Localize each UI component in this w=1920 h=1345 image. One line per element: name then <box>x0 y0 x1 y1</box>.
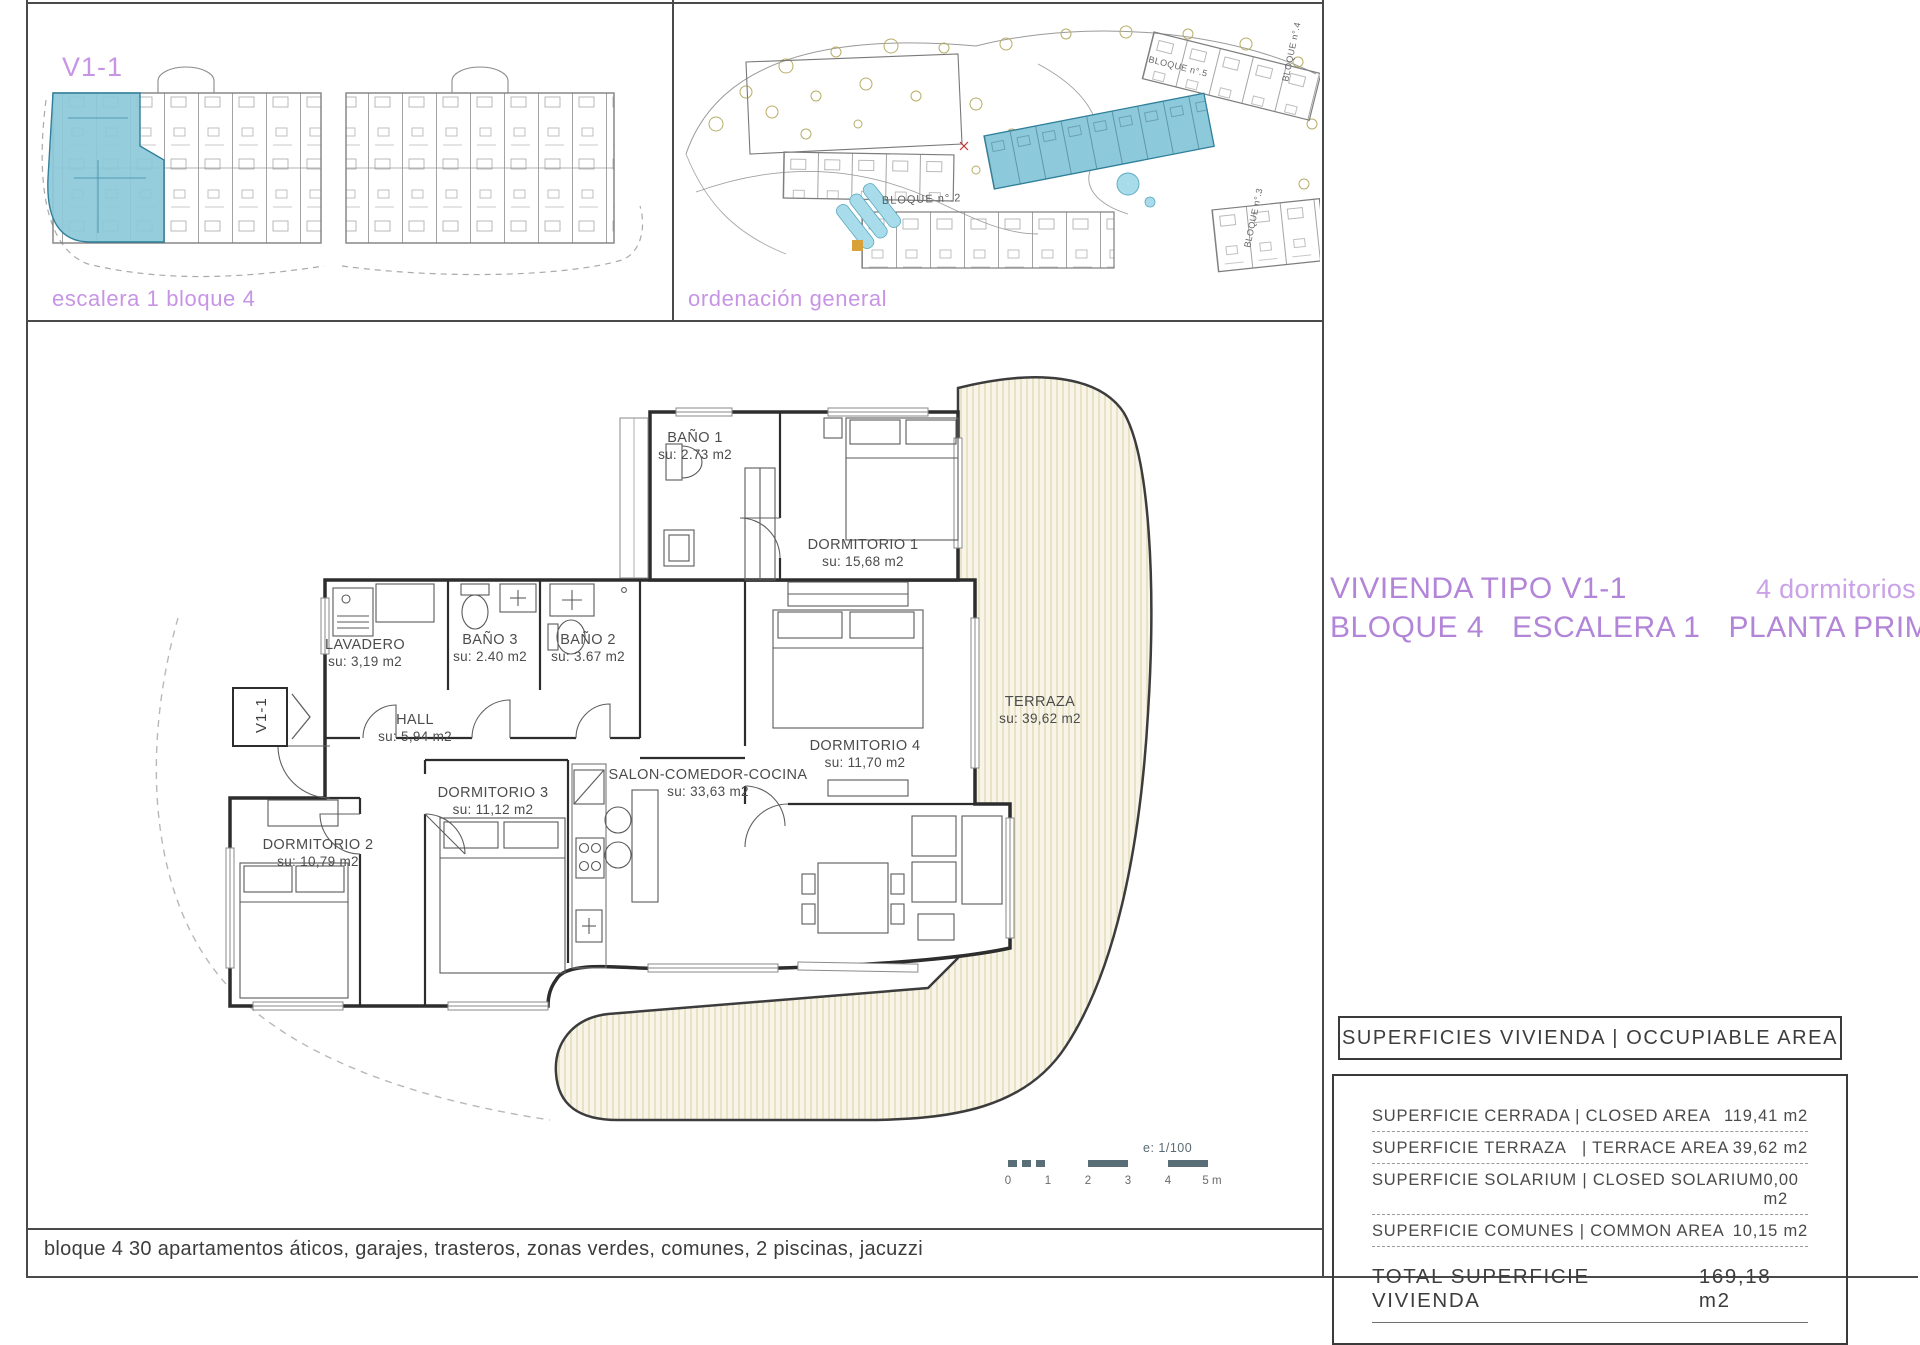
frame-right-column-border <box>1322 0 1324 1278</box>
scale-bar: e: 1/100 0 1 2 3 4 5 m <box>998 1136 1238 1192</box>
area-row-label: SUPERFICIE TERRAZA | TERRACE AREA <box>1372 1139 1729 1158</box>
room-label: DORMITORIO 1 <box>808 537 919 553</box>
table-row: SUPERFICIE COMUNES | COMMON AREA 10,15 m… <box>1372 1215 1808 1247</box>
dwelling-type-title: VIVIENDA TIPO V1-1 <box>1330 572 1627 606</box>
total-value: 169,18 m2 <box>1699 1265 1808 1313</box>
room-area: su: 10,79 m2 <box>277 854 359 869</box>
svg-text:0: 0 <box>1005 1175 1011 1187</box>
svg-text:5 m: 5 m <box>1202 1175 1221 1187</box>
entrance-tag-label: V1-1 <box>253 697 270 733</box>
area-row-value: 39,62 m2 <box>1733 1139 1808 1158</box>
svg-text:2: 2 <box>1085 1175 1091 1187</box>
areas-total-row: TOTAL SUPERFICIE VIVIENDA 169,18 m2 <box>1372 1259 1808 1323</box>
area-row-label: SUPERFICIE SOLARIUM | CLOSED SOLARIUM <box>1372 1171 1763 1190</box>
area-row-value: 0,00 m2 <box>1763 1171 1808 1209</box>
room-area: su: 2.40 m2 <box>453 649 527 664</box>
room-label: DORMITORIO 4 <box>810 738 921 754</box>
area-row-value: 10,15 m2 <box>1733 1222 1808 1241</box>
frame-above-footer <box>26 1228 1324 1230</box>
area-row-label: SUPERFICIE COMUNES | COMMON AREA <box>1372 1222 1725 1241</box>
pool-round <box>1117 173 1139 195</box>
stair-bump-2 <box>452 67 508 93</box>
site-plan-drawing: BLOQUE n°.5 BLOQUE n°.4 BLOQUE n°.2 BLOQ… <box>676 4 1320 296</box>
site-marker-orange <box>852 240 863 251</box>
room-area: su: 3,19 m2 <box>328 654 402 669</box>
scale-ticks: 0 1 2 3 4 5 m <box>1005 1175 1222 1187</box>
room-label: SALON-COMEDOR-COCINA <box>609 767 808 783</box>
total-label: TOTAL SUPERFICIE VIVIENDA <box>1372 1265 1699 1313</box>
footer-description: bloque 4 30 apartamentos áticos, garajes… <box>44 1238 923 1261</box>
svg-text:1: 1 <box>1045 1175 1051 1187</box>
room-area: su: 15,68 m2 <box>822 554 904 569</box>
room-label: HALL <box>396 712 434 728</box>
site-marker-red <box>960 142 968 150</box>
area-row-label: SUPERFICIE CERRADA | CLOSED AREA <box>1372 1107 1711 1126</box>
room-label: DORMITORIO 2 <box>263 837 374 853</box>
title-block: VIVIENDA TIPO V1-1 4 dormitorios BLOQUE … <box>1330 572 1916 645</box>
room-area: su: 33,63 m2 <box>667 784 749 799</box>
table-row: SUPERFICIE CERRADA | CLOSED AREA 119,41 … <box>1372 1100 1808 1132</box>
room-label: TERRAZA <box>1005 694 1075 710</box>
room-area: su: 2.73 m2 <box>658 447 732 462</box>
table-row: SUPERFICIE SOLARIUM | CLOSED SOLARIUM 0,… <box>1372 1164 1808 1215</box>
areas-table: SUPERFICIES VIVIENDA | OCCUPIABLE AREA S… <box>1332 1016 1848 1345</box>
areas-table-header: SUPERFICIES VIVIENDA | OCCUPIABLE AREA <box>1338 1016 1842 1060</box>
room-area: su: 11,70 m2 <box>825 755 906 770</box>
room-label: DORMITORIO 3 <box>438 785 549 801</box>
entrance-arrow-icon <box>292 694 310 739</box>
block-plan-caption: escalera 1 bloque 4 <box>52 286 255 312</box>
frame-divider-top-panels <box>672 0 674 320</box>
room-label: BAÑO 1 <box>667 429 723 446</box>
site-plan-caption: ordenación general <box>688 286 887 312</box>
bloque-label: BLOQUE 4 <box>1330 611 1484 645</box>
area-row-value: 119,41 m2 <box>1724 1107 1808 1126</box>
parcel-outline <box>746 54 962 154</box>
stair-bump-1 <box>158 67 214 93</box>
floor-plan-drawing: V1-1 BAÑO 1 su: 2.73 m2 DORMITORIO 1 su:… <box>28 318 1322 1223</box>
svg-text:3: 3 <box>1125 1175 1131 1187</box>
room-area: su: 3.67 m2 <box>551 649 625 664</box>
escalera-label: ESCALERA 1 <box>1512 611 1700 645</box>
scale-bar-segments <box>1008 1160 1208 1167</box>
site-building-bloque3 <box>1212 199 1320 272</box>
room-label: BAÑO 2 <box>560 631 616 648</box>
block-plan-drawing <box>28 28 663 286</box>
room-label: BAÑO 3 <box>462 631 518 648</box>
scale-ratio-label: e: 1/100 <box>1143 1141 1192 1155</box>
room-area: su: 5,94 m2 <box>378 729 452 744</box>
areas-table-body: SUPERFICIE CERRADA | CLOSED AREA 119,41 … <box>1332 1074 1848 1345</box>
room-area: su: 39,62 m2 <box>999 711 1081 726</box>
planta-label: PLANTA PRIMERA <box>1729 611 1920 645</box>
svg-text:4: 4 <box>1165 1175 1172 1187</box>
bedrooms-count-label: 4 dormitorios <box>1756 574 1916 605</box>
site-label-bloque2: BLOQUE n°.2 <box>882 192 962 207</box>
room-area: su: 11,12 m2 <box>453 802 534 817</box>
site-building-bloque4-highlighted <box>984 93 1214 189</box>
entrance-tag: V1-1 <box>233 688 310 746</box>
table-row: SUPERFICIE TERRAZA | TERRACE AREA 39,62 … <box>1372 1132 1808 1164</box>
room-label: LAVADERO <box>325 637 405 653</box>
jacuzzi <box>1145 197 1155 207</box>
